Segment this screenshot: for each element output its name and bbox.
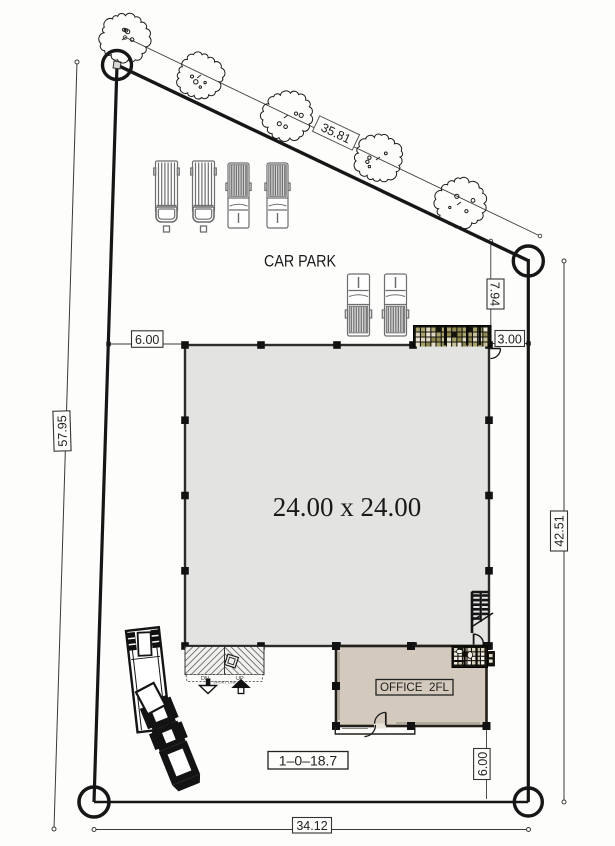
svg-text:24.00 x 24.00: 24.00 x 24.00 [273, 492, 422, 522]
svg-text:57.95: 57.95 [55, 415, 70, 447]
svg-text:OFFICE 2FL: OFFICE 2FL [380, 680, 449, 694]
svg-text:3.00: 3.00 [498, 333, 522, 347]
svg-text:SHORT LINE: SHORT LINE [213, 680, 237, 685]
svg-text:1–0–18.7: 1–0–18.7 [279, 753, 338, 769]
svg-text:6.00: 6.00 [135, 333, 159, 347]
svg-text:34.12: 34.12 [296, 819, 327, 833]
svg-text:7.94: 7.94 [488, 282, 502, 306]
svg-text:6.00: 6.00 [476, 752, 490, 776]
svg-text:CAR PARK: CAR PARK [264, 253, 336, 271]
svg-text:42.51: 42.51 [553, 515, 567, 546]
